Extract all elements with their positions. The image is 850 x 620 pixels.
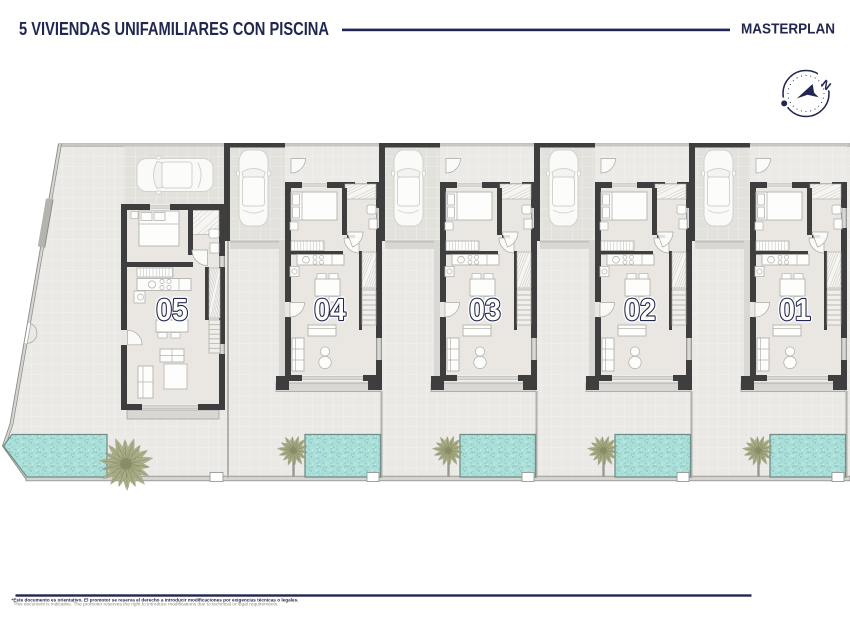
svg-text:04: 04 — [314, 293, 346, 327]
svg-text:02: 02 — [624, 293, 656, 327]
svg-text:01: 01 — [779, 293, 811, 327]
svg-text:MASTERPLAN: MASTERPLAN — [741, 22, 835, 38]
svg-text:5 VIVIENDAS UNIFAMILIARES CON: 5 VIVIENDAS UNIFAMILIARES CON PISCINA — [19, 18, 329, 39]
svg-text:This document is indicative. T: This document is indicative. The promote… — [14, 602, 279, 607]
svg-text:03: 03 — [469, 293, 501, 327]
svg-text:05: 05 — [156, 293, 188, 327]
